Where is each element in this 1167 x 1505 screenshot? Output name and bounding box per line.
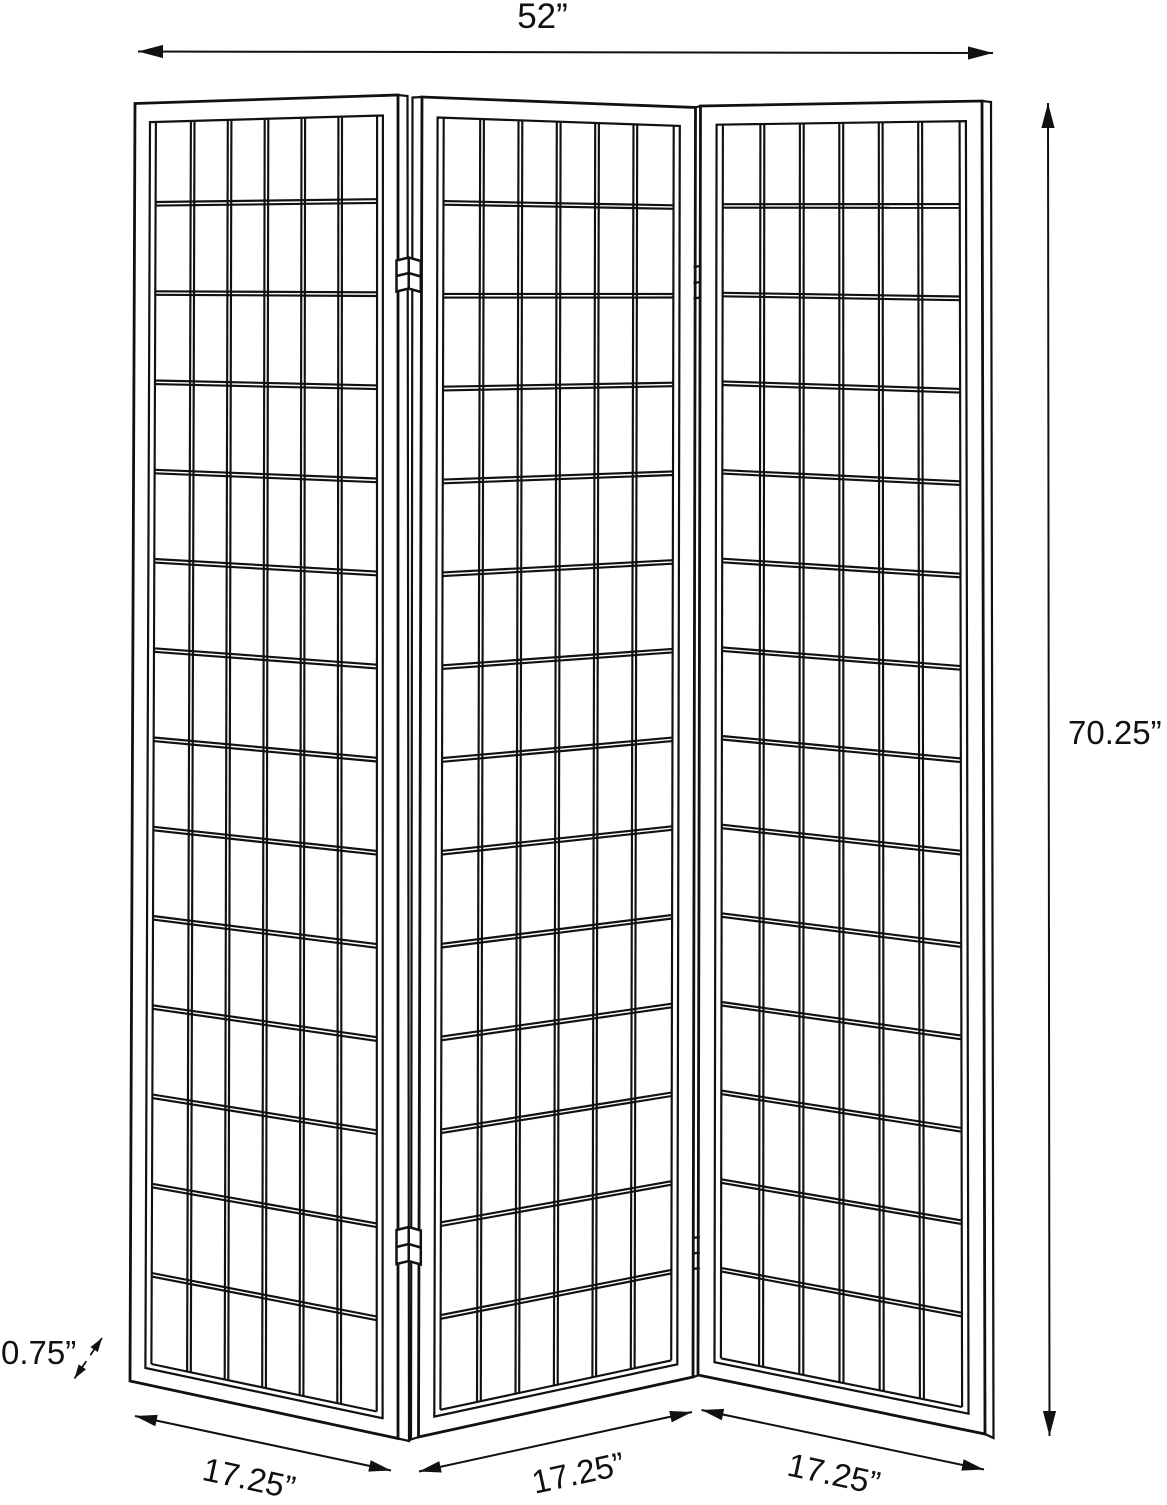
svg-text:0.75”: 0.75” (1, 1334, 76, 1371)
svg-text:70.25”: 70.25” (1068, 714, 1162, 751)
svg-text:52”: 52” (517, 0, 568, 36)
